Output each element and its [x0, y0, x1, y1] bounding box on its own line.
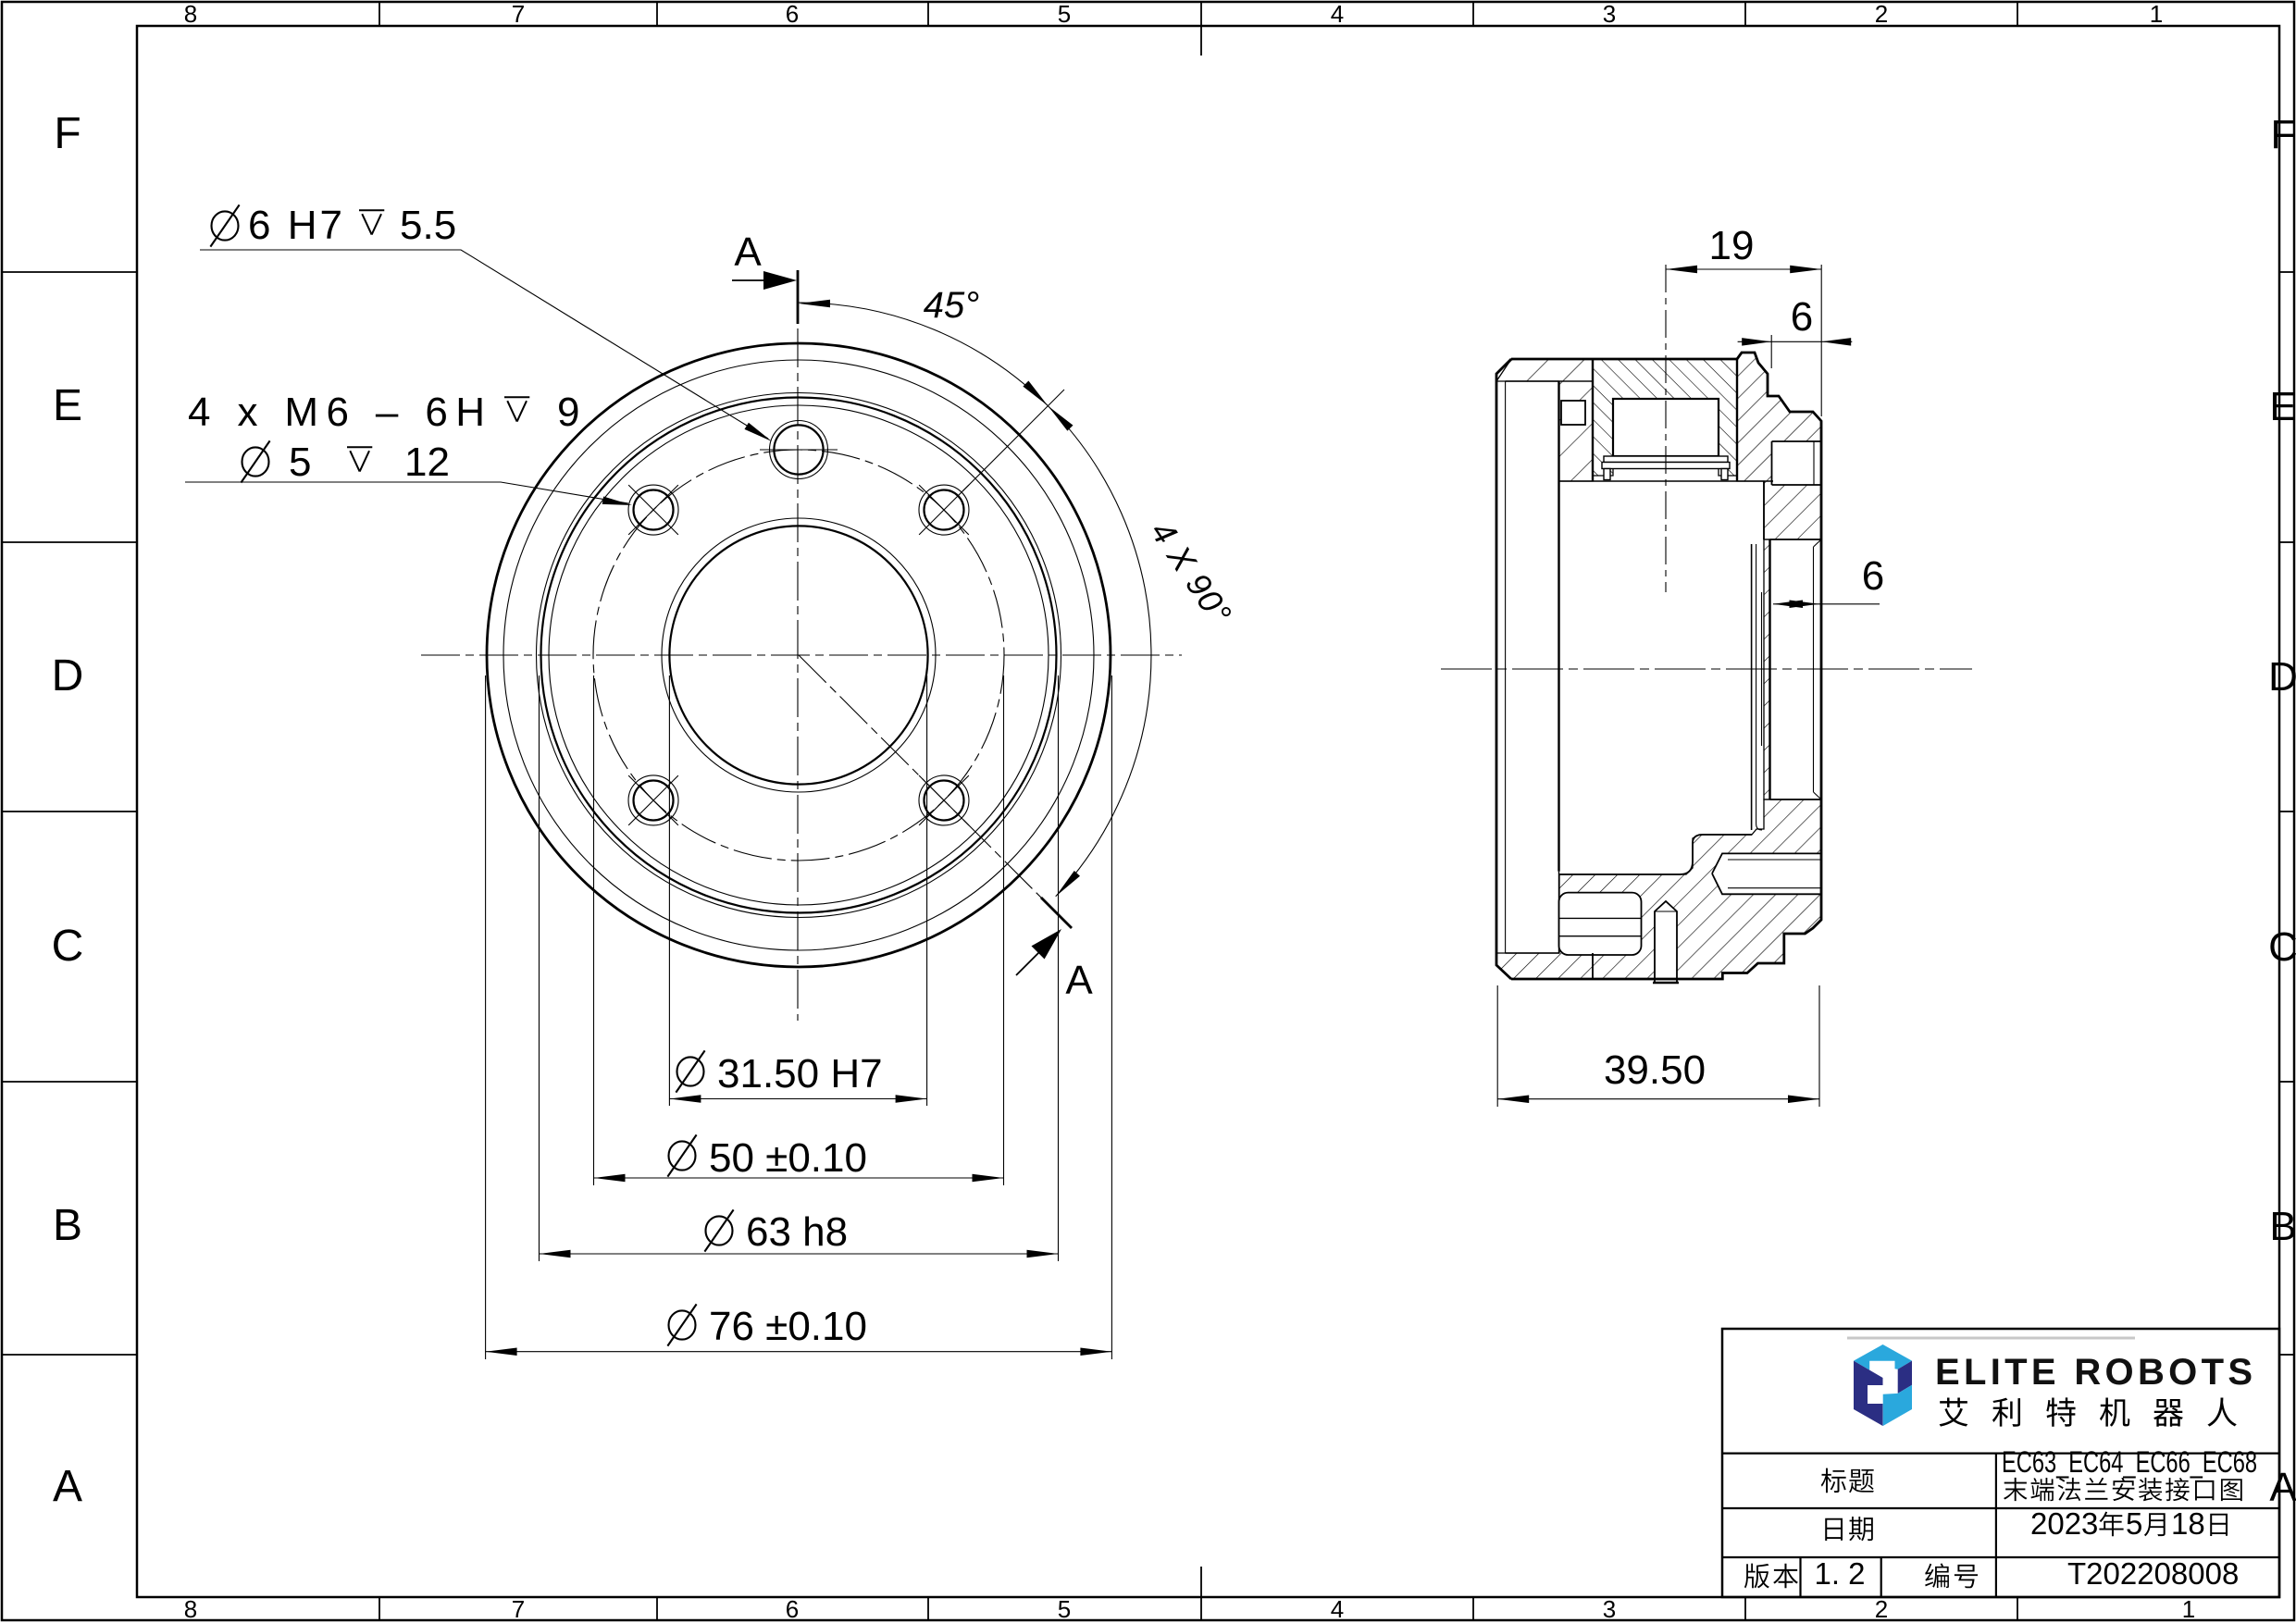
svg-text:A: A [2269, 1465, 2296, 1510]
svg-text:D: D [52, 651, 84, 700]
svg-text:B: B [2269, 1204, 2296, 1249]
svg-text:2: 2 [1875, 0, 1888, 28]
svg-text:A: A [734, 229, 762, 275]
svg-text:A: A [1065, 958, 1093, 1003]
svg-text:6 H7: 6 H7 [248, 203, 345, 248]
svg-text:E: E [2269, 384, 2296, 429]
svg-text:T202208008: T202208008 [2067, 1556, 2239, 1591]
svg-text:ELITE ROBOTS: ELITE ROBOTS [1935, 1352, 2253, 1393]
svg-text:E: E [53, 381, 82, 430]
svg-text:F: F [2271, 112, 2296, 157]
svg-text:63 h8: 63 h8 [746, 1209, 848, 1255]
svg-text:45°: 45° [924, 285, 980, 326]
svg-text:1: 1 [2182, 1595, 2195, 1623]
svg-text:1: 1 [2150, 0, 2163, 28]
svg-text:31.50 H7: 31.50 H7 [717, 1051, 883, 1096]
svg-text:19: 19 [1709, 223, 1755, 268]
svg-text:A: A [53, 1462, 82, 1511]
svg-text:39.50: 39.50 [1604, 1047, 1706, 1093]
svg-text:5: 5 [2126, 1506, 2142, 1541]
svg-text:2: 2 [1875, 1595, 1888, 1623]
svg-text:4: 4 [1331, 0, 1344, 28]
svg-text:D: D [2268, 654, 2296, 700]
svg-text:3: 3 [1603, 1595, 1616, 1623]
svg-text:5: 5 [1058, 0, 1071, 28]
svg-text:9: 9 [557, 390, 579, 435]
svg-text:8: 8 [184, 0, 197, 28]
svg-text:6: 6 [1791, 294, 1813, 340]
svg-text:6: 6 [1862, 553, 1884, 599]
svg-text:1. 2: 1. 2 [1814, 1556, 1865, 1591]
svg-text:5: 5 [1058, 1595, 1071, 1623]
svg-text:12: 12 [404, 440, 450, 485]
svg-text:4 X 90°: 4 X 90° [1143, 514, 1239, 632]
svg-text:4: 4 [1331, 1595, 1344, 1623]
svg-text:6: 6 [786, 1595, 799, 1623]
svg-text:7: 7 [512, 1595, 525, 1623]
svg-text:2023: 2023 [2030, 1506, 2098, 1541]
svg-text:EC63_EC64_EC66_EC68: EC63_EC64_EC66_EC68 [2002, 1445, 2257, 1479]
svg-text:6: 6 [786, 0, 799, 28]
svg-text:3: 3 [1603, 0, 1616, 28]
svg-text:C: C [52, 922, 84, 971]
svg-text:18: 18 [2171, 1506, 2205, 1541]
svg-text:50 ±0.10: 50 ±0.10 [709, 1135, 867, 1181]
svg-text:F: F [54, 109, 81, 158]
svg-text:76 ±0.10: 76 ±0.10 [709, 1304, 867, 1349]
svg-text:7: 7 [512, 0, 525, 28]
svg-text:8: 8 [184, 1595, 197, 1623]
svg-text:5: 5 [289, 440, 311, 485]
svg-text:5.5: 5.5 [400, 203, 456, 248]
svg-text:B: B [53, 1201, 82, 1250]
svg-text:4 x M6 – 6H: 4 x M6 – 6H [188, 390, 485, 435]
svg-text:C: C [2268, 924, 2296, 970]
